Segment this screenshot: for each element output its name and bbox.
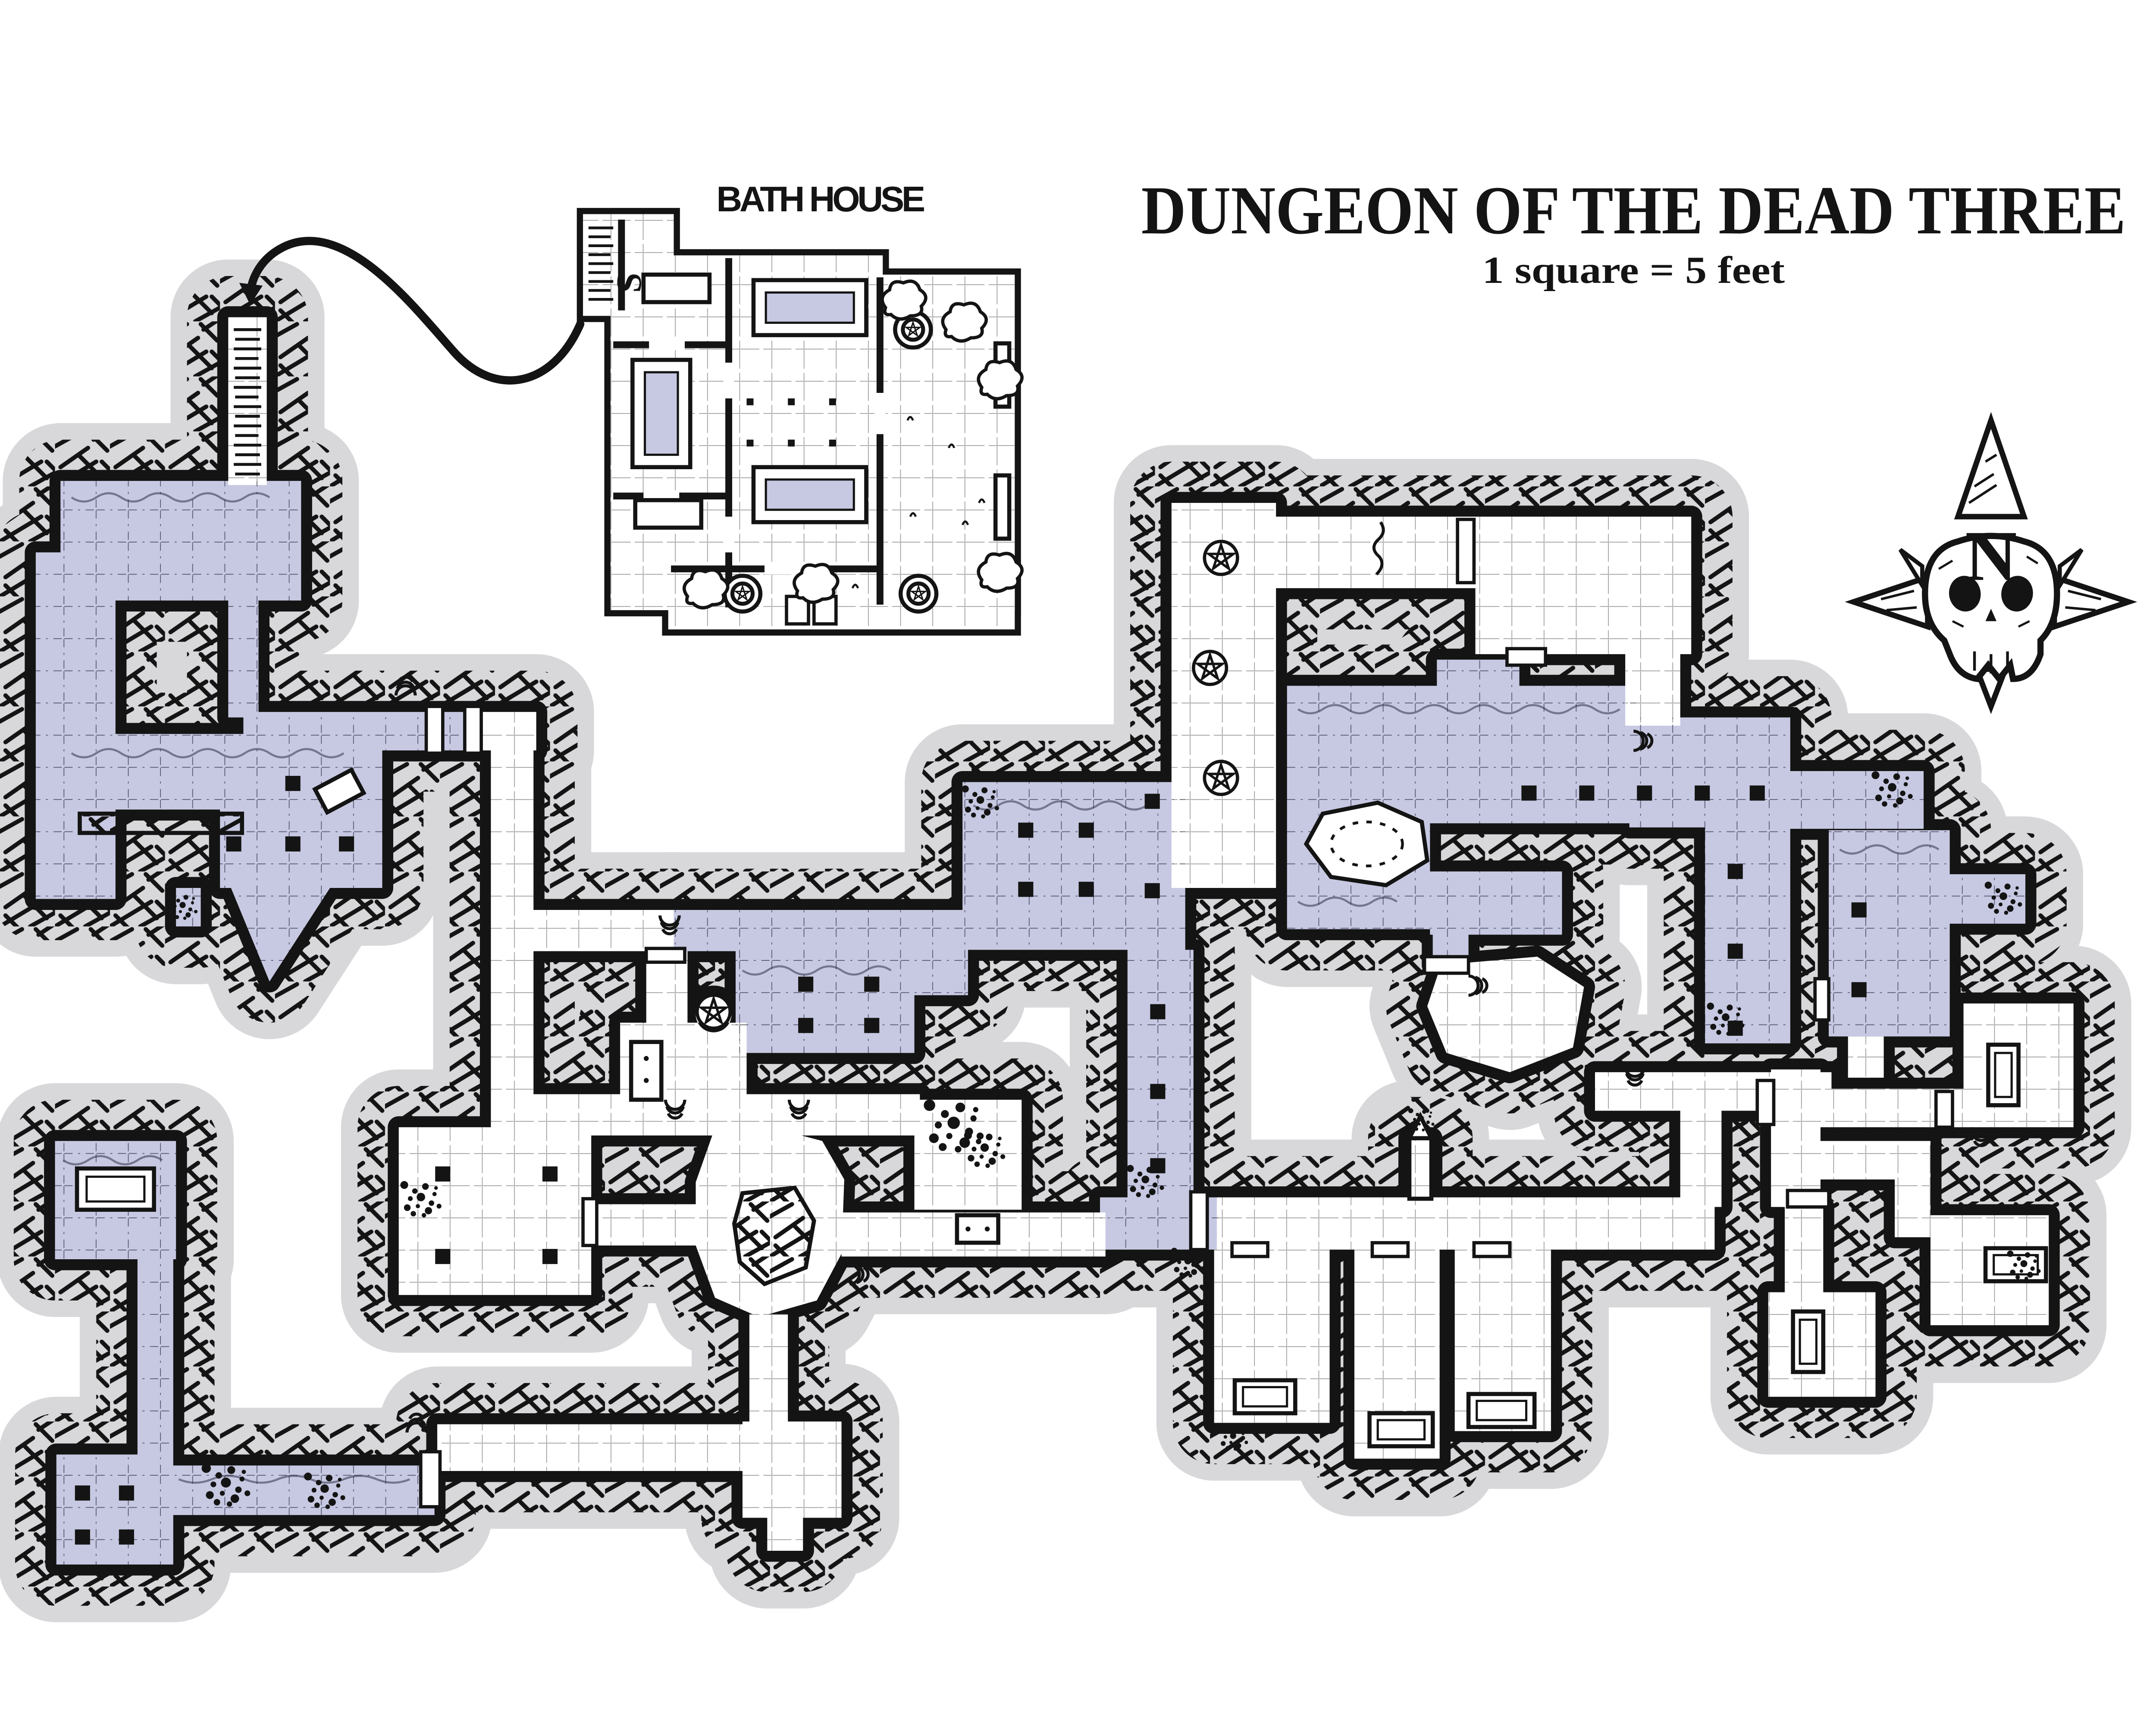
pentagram-icon	[697, 995, 730, 1029]
rock-island	[734, 1188, 814, 1284]
round-pool-icon	[724, 576, 760, 612]
map-title: DUNGEON OF THE DEAD THREE	[1141, 172, 2126, 248]
inset-label: BATH HOUSE	[716, 179, 925, 219]
bush-tree-icon	[794, 565, 838, 602]
bush-tree-icon	[978, 361, 1022, 399]
bath-house-inset: S BATH HOUSE	[564, 179, 1031, 651]
bush-tree-icon	[943, 303, 986, 341]
map-scale-note: 1 square = 5 feet	[1482, 249, 1785, 292]
treasure-chest	[957, 1215, 998, 1243]
dungeon-floorplan	[0, 157, 2156, 1569]
round-pool-icon	[901, 576, 937, 612]
altar	[631, 1042, 661, 1100]
title-block: DUNGEON OF THE DEAD THREE 1 square = 5 f…	[1141, 172, 2126, 292]
bush-tree-icon	[684, 570, 728, 608]
dungeon-map-image: S BATH HOUSE	[0, 0, 2156, 1725]
west-arrow	[1853, 577, 1927, 627]
bush-tree-icon	[882, 281, 926, 319]
east-arrow	[2054, 577, 2128, 627]
pentagram-icon	[1204, 541, 1238, 574]
rock-island	[80, 814, 242, 833]
pentagram-icon	[1194, 652, 1227, 685]
dungeon-map-page: S BATH HOUSE	[0, 0, 2156, 1725]
compass-rose: N	[1853, 420, 2128, 706]
pentagram-icon	[1204, 762, 1238, 795]
compass-north-label: N	[1965, 516, 2017, 596]
north-arrow	[1958, 420, 2024, 517]
bush-tree-icon	[978, 553, 1022, 591]
